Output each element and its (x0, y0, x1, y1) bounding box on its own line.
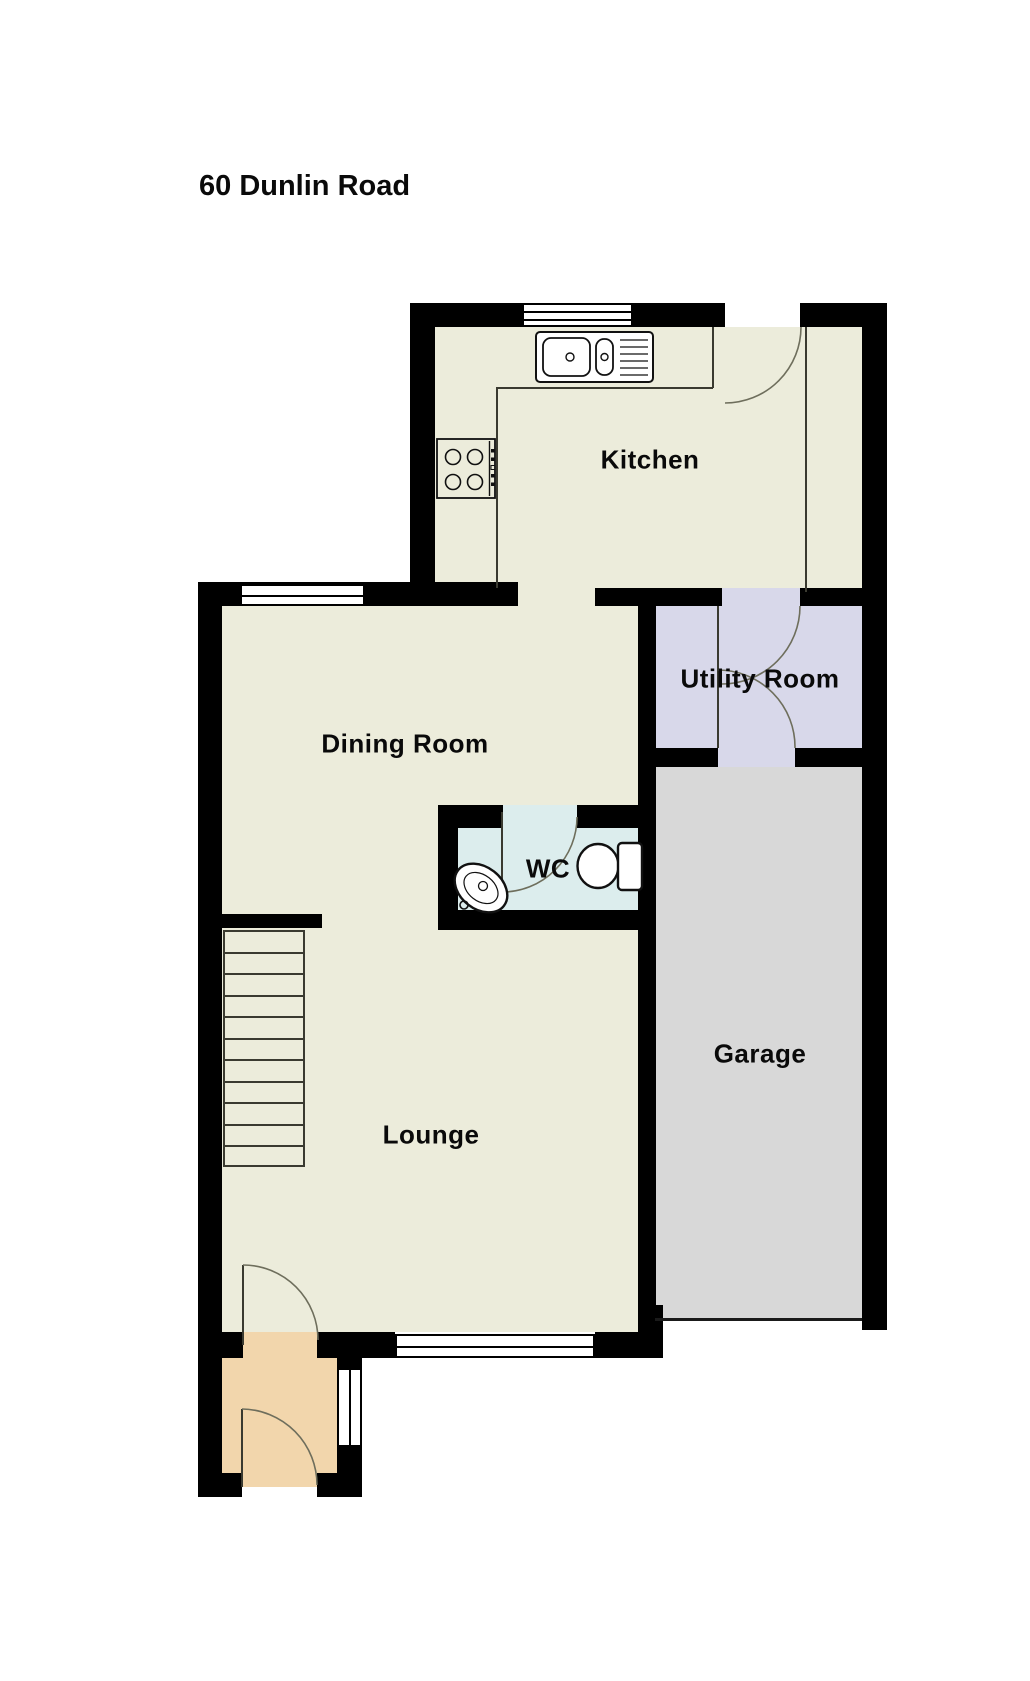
porch-door-leaf (241, 1409, 243, 1487)
counter-edge-left (496, 387, 498, 588)
wc-door-gap (503, 805, 577, 828)
utility-room-label: Utility Room (680, 664, 839, 695)
kitchen-label: Kitchen (601, 445, 700, 476)
wall-kitchen-top (410, 303, 887, 327)
wall-lounge-bottom-c (595, 1332, 663, 1358)
floorplan-canvas: 60 Dunlin Road (0, 0, 1030, 1681)
stair-tread (225, 973, 303, 975)
stair-tread (225, 952, 303, 954)
back-door-opening (725, 303, 800, 327)
utility-top-door-gap (722, 588, 800, 606)
wc-label: WC (526, 854, 570, 885)
wall-porch-bottom-left (198, 1473, 242, 1497)
counter-edge-sink-right (712, 327, 714, 388)
wall-wc-bottom (438, 910, 656, 930)
wall-utility-bottom-right (795, 748, 862, 767)
porch-floor (222, 1347, 337, 1473)
wall-kitchen-left (410, 327, 435, 588)
wall-garage-divider (638, 605, 656, 1332)
wall-right-outer (862, 303, 887, 1330)
stair-tread (225, 1038, 303, 1040)
wall-porch-bottom-right (317, 1473, 362, 1497)
utility-bottom-door-gap (718, 748, 795, 767)
stair-tread (225, 1059, 303, 1061)
stair-tread (225, 1102, 303, 1104)
lounge-label: Lounge (383, 1120, 480, 1151)
stair-tread (225, 995, 303, 997)
garage-label: Garage (714, 1039, 807, 1070)
staircase (223, 930, 305, 1167)
wall-utility-top-right (800, 588, 862, 606)
stair-tread (225, 1145, 303, 1147)
kitchen-window-mullion-2 (524, 319, 631, 321)
kitchen-window-mullion-1 (524, 311, 631, 313)
porch-window (337, 1368, 362, 1447)
front-door-leaf (242, 1265, 244, 1345)
wall-stairs-stub (222, 914, 322, 928)
garage-door-line (655, 1318, 862, 1321)
wall-wc-top-right (577, 805, 656, 828)
wall-kitchen-bottom-right (595, 588, 722, 606)
lounge-window (395, 1334, 595, 1358)
plan-title: 60 Dunlin Road (199, 170, 410, 203)
dining-window-mullion (242, 595, 363, 597)
dining-room-label: Dining Room (321, 729, 488, 760)
lounge-window-mullion (397, 1346, 593, 1348)
wall-utility-bottom-left (656, 748, 718, 767)
front-door-gap (243, 1332, 317, 1358)
porch-window-mullion (349, 1370, 351, 1445)
kitchen-window (522, 303, 633, 327)
wall-left-outer (198, 582, 222, 1497)
counter-edge-right-run (805, 327, 807, 592)
wall-lounge-bottom-a (222, 1332, 243, 1358)
stair-tread (225, 1081, 303, 1083)
counter-edge-top (497, 387, 713, 389)
stair-tread (225, 1124, 303, 1126)
dining-window (240, 584, 365, 606)
porch-door-gap (242, 1473, 317, 1487)
wc-door-leaf (501, 812, 503, 892)
stair-tread (225, 1016, 303, 1018)
